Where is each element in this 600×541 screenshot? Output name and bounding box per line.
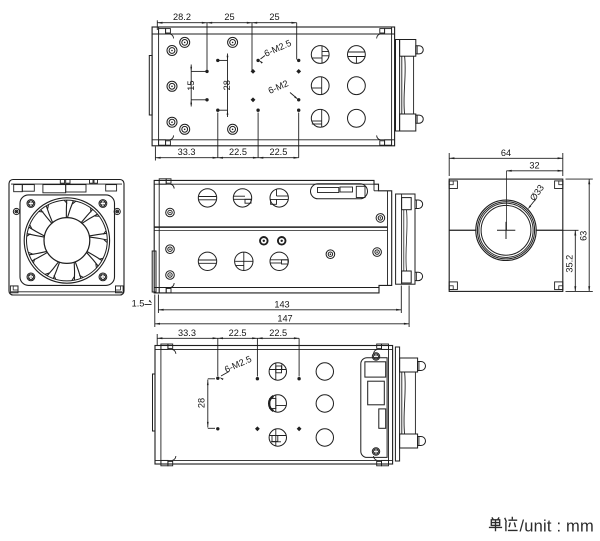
svg-text:15: 15 xyxy=(186,80,196,90)
svg-text:33.3: 33.3 xyxy=(178,147,196,157)
svg-text:22.5: 22.5 xyxy=(269,147,287,157)
svg-text:28: 28 xyxy=(222,80,232,90)
svg-text:64: 64 xyxy=(501,148,511,158)
svg-text:22.5: 22.5 xyxy=(229,147,247,157)
svg-text:/unit : mm: /unit : mm xyxy=(520,518,594,536)
svg-text:32: 32 xyxy=(529,160,539,170)
svg-text:22.5: 22.5 xyxy=(229,328,247,338)
svg-text:28.2: 28.2 xyxy=(173,12,191,22)
svg-text:147: 147 xyxy=(277,314,292,324)
svg-text:143: 143 xyxy=(274,300,289,310)
svg-text:35.2: 35.2 xyxy=(565,255,575,273)
svg-text:22.5: 22.5 xyxy=(269,328,287,338)
svg-text:28: 28 xyxy=(196,398,206,408)
svg-text:33.3: 33.3 xyxy=(178,328,196,338)
svg-text:25: 25 xyxy=(224,12,234,22)
svg-text:1.5: 1.5 xyxy=(132,298,145,308)
svg-text:25: 25 xyxy=(269,12,279,22)
svg-text:63: 63 xyxy=(579,231,589,241)
